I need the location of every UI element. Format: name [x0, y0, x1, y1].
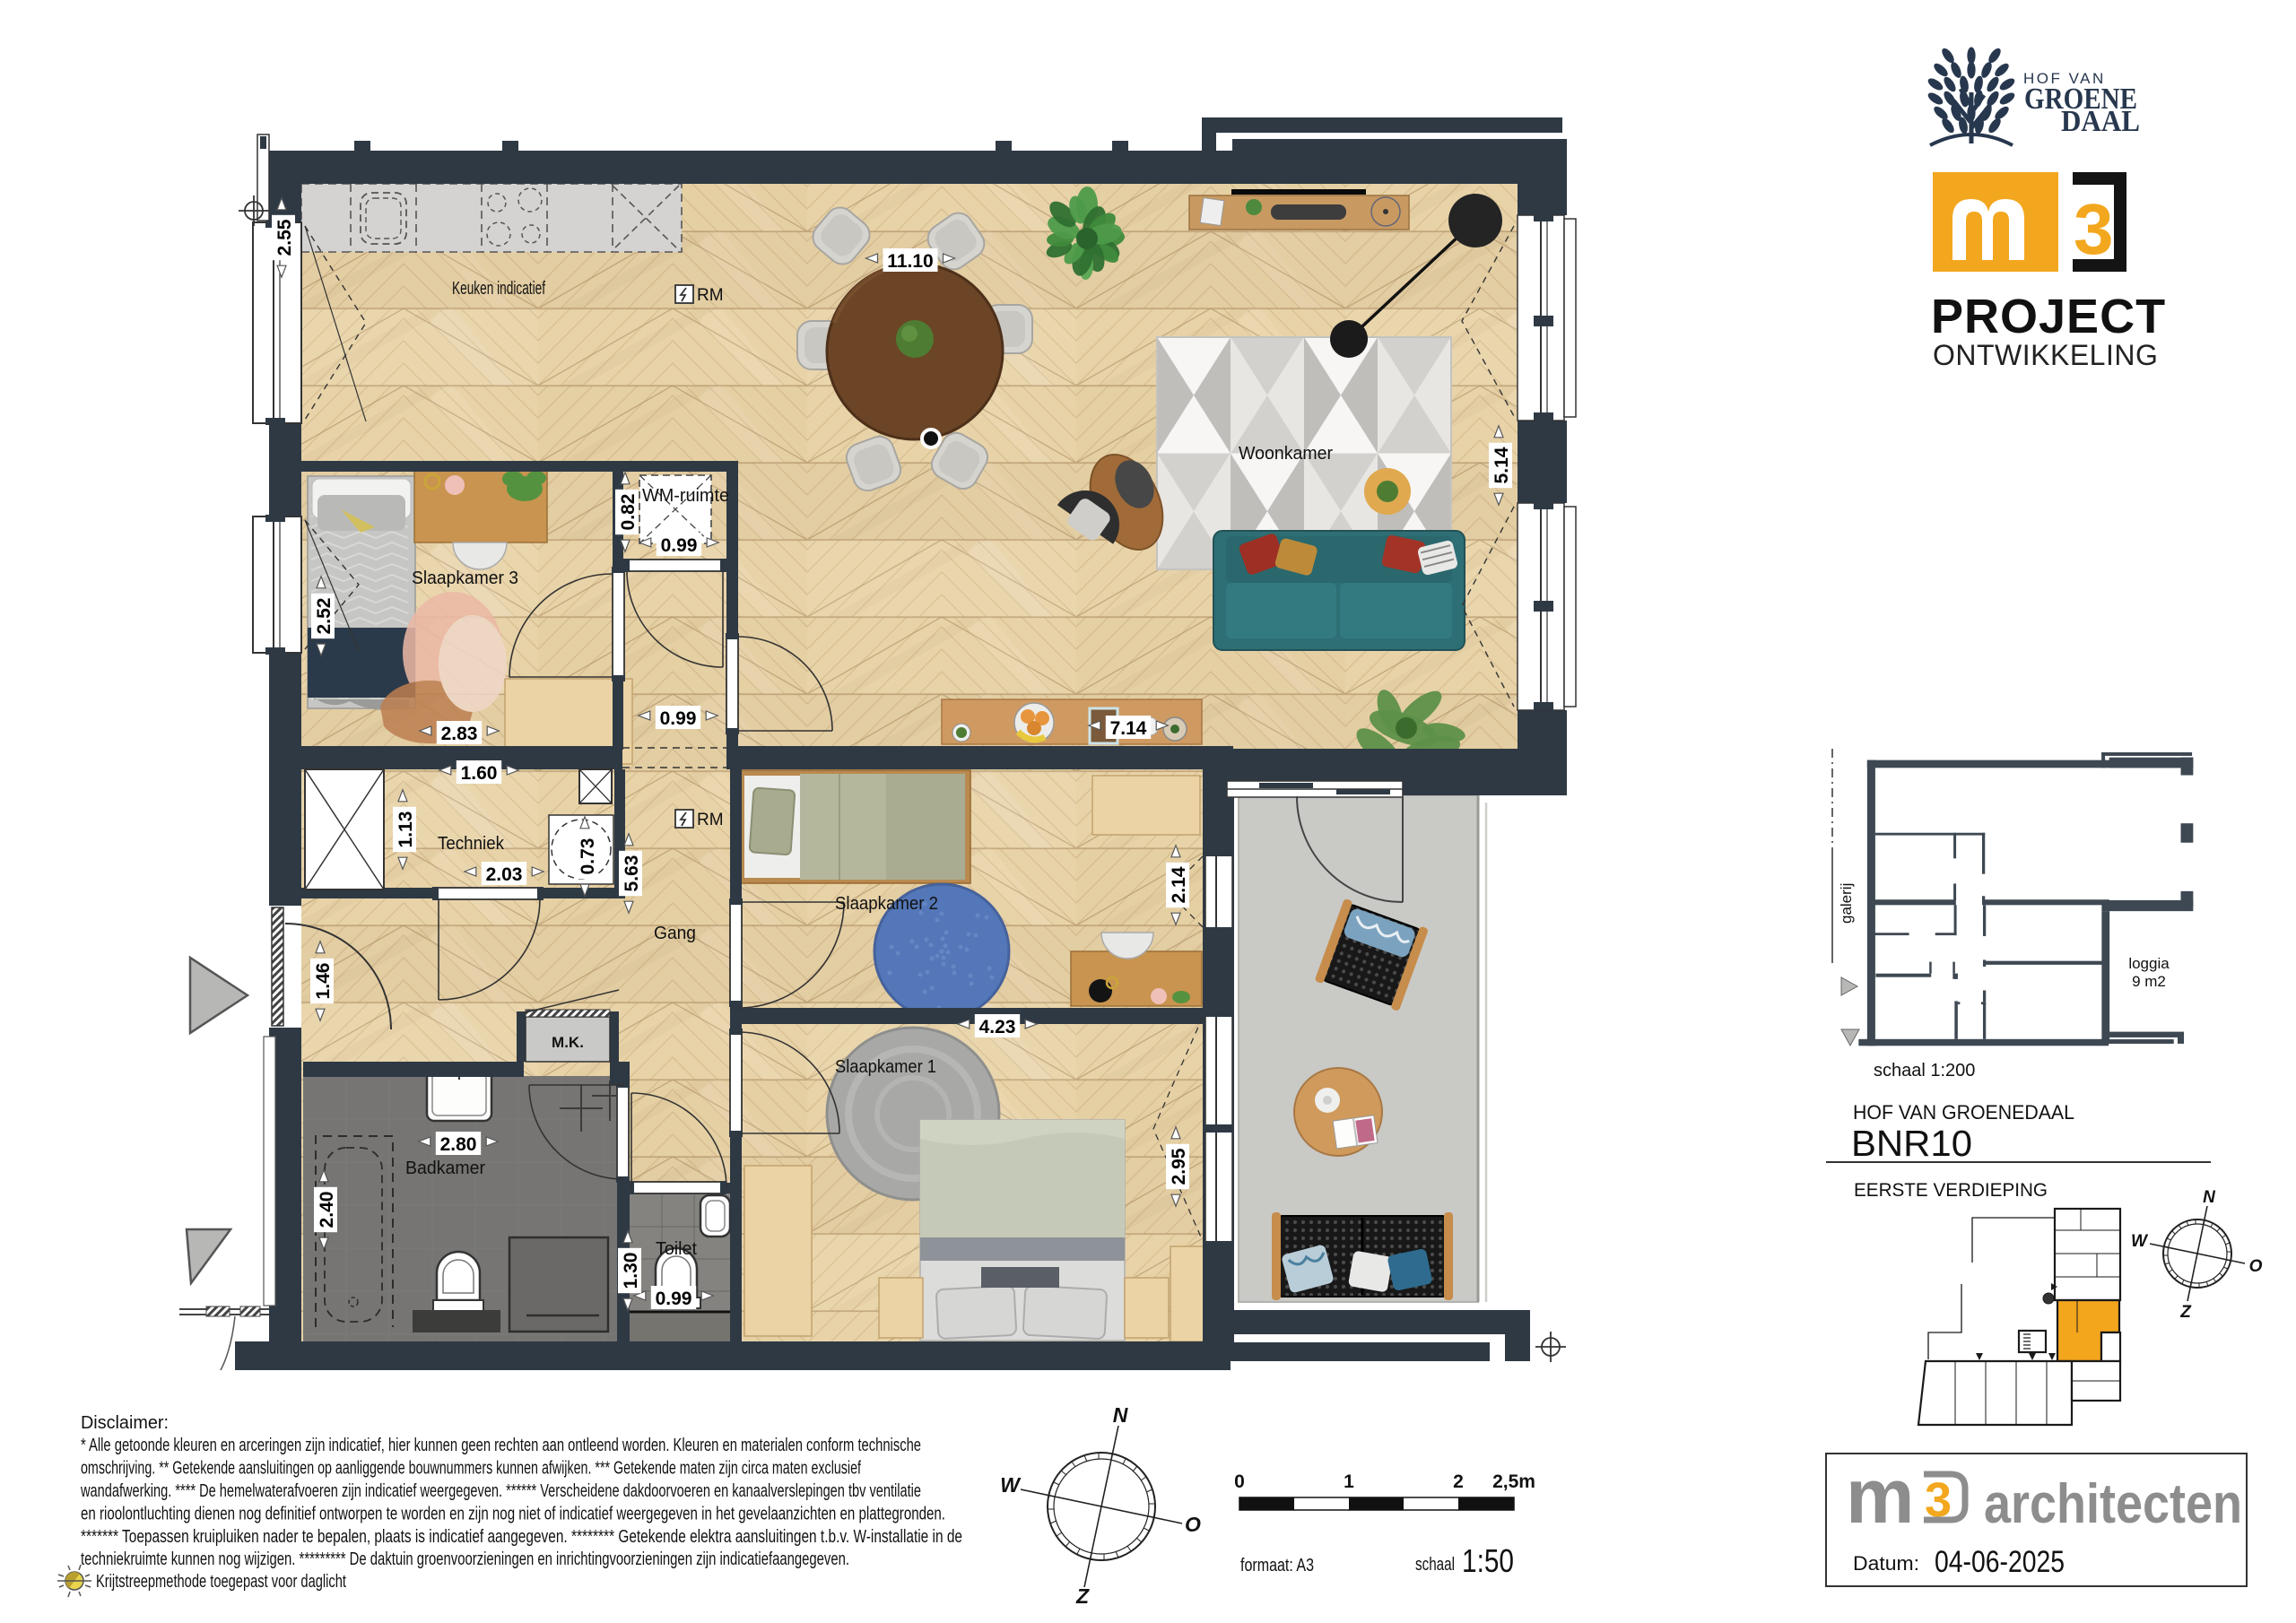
svg-text:* Alle getoonde kleuren en arc: * Alle getoonde kleuren en arceringen zi…	[81, 1436, 921, 1455]
svg-text:Datum:: Datum:	[1853, 1552, 1919, 1575]
svg-text:2.95: 2.95	[1169, 1148, 1189, 1185]
svg-text:5.63: 5.63	[622, 855, 642, 892]
svg-text:O: O	[1185, 1513, 1201, 1536]
svg-text:Keuken indicatief: Keuken indicatief	[452, 279, 545, 299]
svg-text:Z: Z	[1075, 1584, 1090, 1608]
svg-text:schaal 1:200: schaal 1:200	[1874, 1061, 1975, 1081]
svg-text:2.52: 2.52	[314, 598, 335, 635]
svg-text:Gang: Gang	[654, 924, 696, 943]
svg-text:0.73: 0.73	[578, 838, 598, 875]
svg-text:techniekruimte kunnen nog wijz: techniekruimte kunnen nog wijzigen. ****…	[81, 1549, 849, 1569]
svg-text:Badkamer: Badkamer	[405, 1159, 485, 1178]
svg-text:11.10: 11.10	[887, 251, 933, 272]
svg-text:9 m2: 9 m2	[2132, 973, 2166, 990]
svg-text:O: O	[2249, 1257, 2263, 1276]
svg-text:Disclaimer:: Disclaimer:	[81, 1413, 169, 1433]
svg-text:2.83: 2.83	[441, 724, 478, 744]
svg-text:wandafwerking. **** De hemelwa: wandafwerking. **** De hemelwaterafvoere…	[80, 1481, 921, 1501]
svg-text:Slaapkamer 1: Slaapkamer 1	[835, 1057, 936, 1077]
svg-text:2.03: 2.03	[486, 864, 523, 885]
svg-text:N: N	[1113, 1403, 1128, 1427]
svg-text:4.23: 4.23	[979, 1017, 1016, 1037]
svg-text:ONTWIKKELING: ONTWIKKELING	[1933, 339, 2158, 371]
svg-text:RM: RM	[697, 811, 724, 829]
svg-text:schaal: schaal	[1415, 1555, 1455, 1575]
svg-text:Z: Z	[2179, 1303, 2192, 1322]
svg-text:PROJECT: PROJECT	[1931, 290, 2166, 343]
svg-text:Slaapkamer 2: Slaapkamer 2	[835, 894, 938, 914]
svg-text:HOF VAN GROENEDAAL: HOF VAN GROENEDAAL	[1853, 1101, 2074, 1124]
svg-text:W: W	[2131, 1232, 2149, 1251]
svg-text:2.55: 2.55	[274, 219, 295, 256]
svg-text:DAAL: DAAL	[2061, 105, 2140, 138]
svg-text:0.99: 0.99	[661, 535, 698, 556]
svg-text:1: 1	[1344, 1471, 1354, 1492]
svg-text:N: N	[2203, 1188, 2216, 1207]
svg-text:galerij: galerij	[1838, 883, 1855, 924]
svg-text:1.46: 1.46	[313, 963, 334, 1000]
svg-text:1.30: 1.30	[621, 1253, 641, 1289]
svg-text:BNR10: BNR10	[1851, 1123, 1972, 1164]
svg-text:Slaapkamer 3: Slaapkamer 3	[412, 568, 518, 588]
svg-text:2.80: 2.80	[440, 1134, 477, 1155]
svg-text:Techniek: Techniek	[438, 834, 505, 854]
svg-text:7.14: 7.14	[1110, 718, 1147, 739]
svg-text:3: 3	[2074, 189, 2114, 269]
svg-text:Krijtstreepmethode toegepast v: Krijtstreepmethode toegepast voor daglic…	[96, 1572, 346, 1592]
svg-text:RM: RM	[697, 286, 724, 305]
svg-text:0.82: 0.82	[618, 494, 639, 531]
svg-text:0.99: 0.99	[660, 708, 697, 729]
svg-text:2.40: 2.40	[317, 1192, 337, 1228]
svg-text:loggia: loggia	[2128, 955, 2170, 972]
svg-text:1:50: 1:50	[1462, 1542, 1514, 1579]
svg-text:5.14: 5.14	[1492, 447, 1512, 483]
svg-text:Toilet: Toilet	[656, 1239, 697, 1259]
svg-text:2,5m: 2,5m	[1492, 1471, 1535, 1492]
svg-text:WM-ruimte: WM-ruimte	[642, 486, 729, 506]
svg-text:04-06-2025: 04-06-2025	[1935, 1545, 2065, 1579]
svg-text:2: 2	[1453, 1471, 1464, 1492]
svg-text:W: W	[1000, 1473, 1022, 1497]
svg-text:0.99: 0.99	[656, 1289, 692, 1309]
svg-text:omschrijving. ** Getekende aan: omschrijving. ** Getekende aansluitingen…	[81, 1459, 861, 1479]
svg-text:formaat: A3: formaat: A3	[1240, 1556, 1314, 1575]
svg-text:en rioolontluchting dienen nog: en rioolontluchting dienen nog definitie…	[81, 1504, 945, 1523]
svg-text:M.K.: M.K.	[552, 1034, 584, 1051]
svg-text:EERSTE VERDIEPING: EERSTE VERDIEPING	[1854, 1180, 2048, 1201]
svg-text:******* Toepassen kruipluiken: ******* Toepassen kruipluiken nader te b…	[81, 1527, 962, 1547]
svg-text:Woonkamer: Woonkamer	[1239, 444, 1333, 464]
svg-text:architecten: architecten	[1984, 1473, 2242, 1535]
svg-text:1.60: 1.60	[461, 763, 498, 784]
svg-text:2.14: 2.14	[1169, 866, 1189, 903]
svg-text:0: 0	[1234, 1471, 1245, 1492]
svg-text:1.13: 1.13	[396, 811, 416, 848]
svg-text:m: m	[1846, 1454, 1914, 1540]
